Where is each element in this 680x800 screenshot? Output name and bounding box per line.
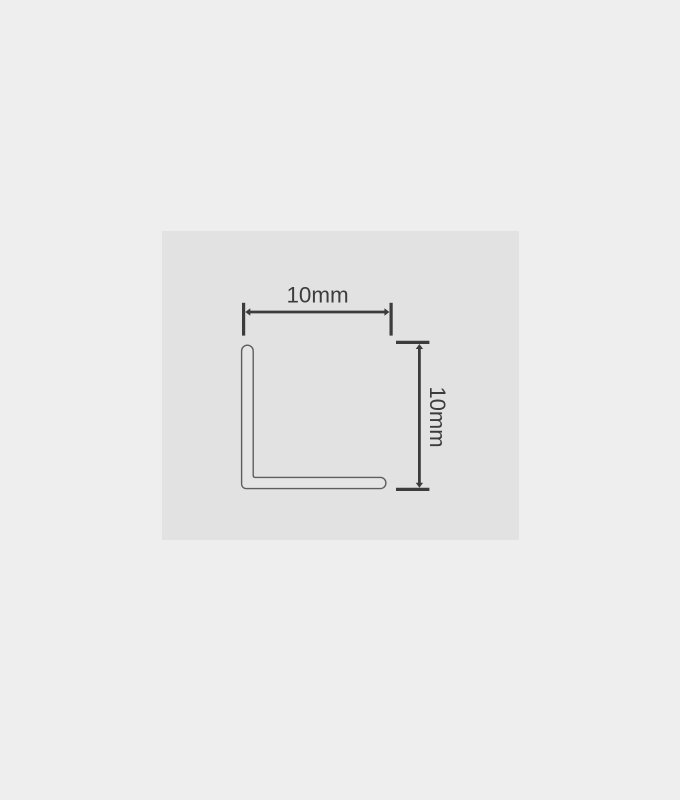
svg-text:10mm: 10mm	[425, 386, 450, 447]
svg-text:10mm: 10mm	[286, 283, 348, 308]
